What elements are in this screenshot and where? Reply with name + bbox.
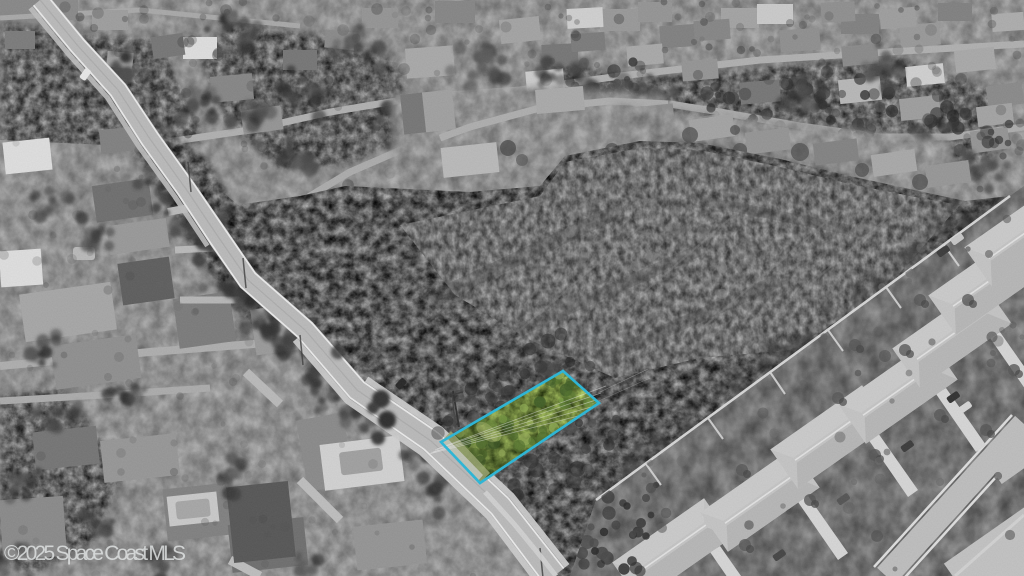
svg-text:©2025 Space Coast MLS: ©2025 Space Coast MLS	[4, 542, 186, 565]
